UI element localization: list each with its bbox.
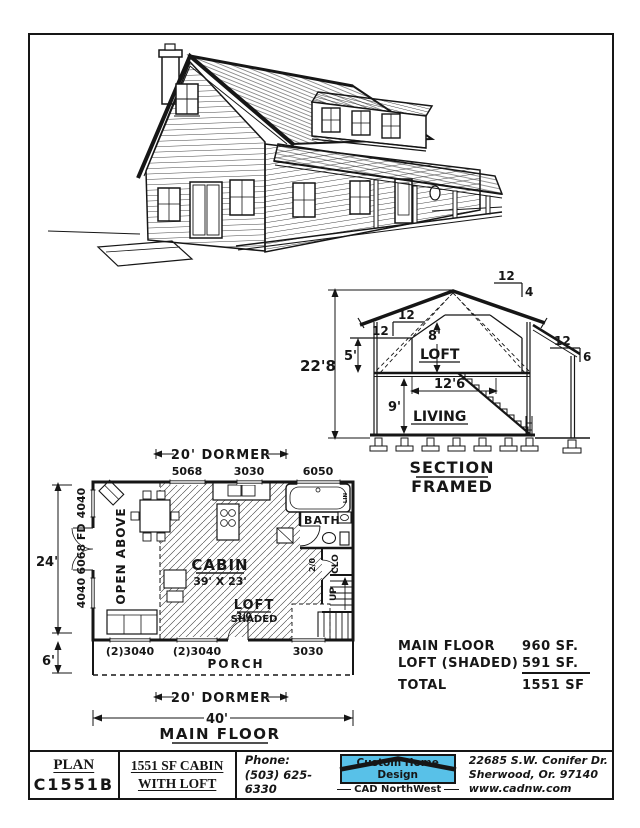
title-block-plan-cell: PLAN C1551B [30, 752, 118, 798]
door-front-label: 3/0 [236, 612, 252, 622]
pitch-12-12: 12 12 [372, 308, 425, 338]
dormer-window [322, 108, 340, 132]
dormer-window [382, 114, 400, 138]
corner-unit [99, 480, 124, 505]
area-row-total: TOTAL 1551 SF [398, 677, 590, 694]
open-above-label: OPEN ABOVE [114, 507, 128, 604]
plan-sheet: 22'8 8' LOFT 5' 12'6 9' LIVING 12 [0, 0, 640, 828]
dim-loft-width: 12'6 [434, 377, 465, 392]
area-value: 960 SF. [522, 638, 590, 655]
porch-depth-dim: 6' [42, 654, 55, 669]
area-label: MAIN FLOOR [398, 638, 495, 655]
svg-text:(2)3040: (2)3040 [106, 645, 155, 658]
address-line3: www.cadnw.com [469, 782, 608, 796]
svg-text:12: 12 [498, 269, 515, 283]
logo-roof-icon [336, 756, 460, 771]
cabin-size-label: 39' X 23' [193, 575, 247, 588]
svg-text:3030: 3030 [234, 465, 265, 478]
loft-label: LOFT [234, 598, 275, 613]
title-block: PLAN C1551B 1551 SF CABIN WITH LOFT Phon… [28, 750, 614, 800]
svg-text:6068 FD: 6068 FD [75, 523, 88, 574]
armchair [164, 570, 186, 602]
logo-subtitle: CAD NorthWest [337, 784, 459, 795]
cabin-perspective-drawing [40, 40, 510, 275]
dim-kneewall: 5' [344, 349, 357, 364]
clo-label: CLO [331, 554, 341, 574]
dim-overall-height: 22'8 [300, 357, 336, 375]
area-label: LOFT (SHADED) [398, 655, 518, 674]
up-label: UP [329, 587, 339, 601]
porch-label: PORCH [207, 657, 264, 671]
living-label: LIVING [413, 409, 466, 425]
company-logo: Custom Home Design CAD NorthWest [335, 756, 461, 795]
plan-label: PLAN [53, 757, 94, 774]
plan-title-line2: WITH LOFT [138, 775, 216, 793]
cabin-label: CABIN [191, 556, 248, 574]
entry-stoop [98, 241, 192, 266]
plan-number: C1551B [34, 775, 114, 794]
side-door [395, 179, 412, 223]
lin-label: LIN [343, 493, 349, 504]
section-structure [350, 291, 590, 453]
front-double-door [190, 182, 222, 238]
dormer-top-dim: 20' DORMER [171, 448, 271, 463]
floor-plan-drawing: OPEN ABOVE CABIN 39' X 23' LOFT SHADED B… [28, 438, 388, 748]
area-row: LOFT (SHADED) 591 SF. [398, 655, 590, 674]
door-bath-label: 2/0 [308, 558, 317, 572]
dim-living-height: 9' [388, 400, 401, 415]
svg-text:SECTION: SECTION [409, 458, 494, 477]
area-row: MAIN FLOOR 960 SF. [398, 638, 590, 655]
loft-label: LOFT [420, 347, 460, 363]
dim-loft-height: 8' [428, 329, 441, 344]
title-block-title-cell: 1551 SF CABIN WITH LOFT [118, 752, 237, 798]
dormer-window [352, 111, 370, 135]
svg-text:4040: 4040 [75, 487, 88, 518]
section-stairs [458, 373, 532, 436]
dormer-bottom-dim: 20' DORMER [171, 691, 271, 706]
svg-text:4: 4 [525, 285, 533, 299]
area-table: MAIN FLOOR 960 SF. LOFT (SHADED) 591 SF.… [398, 638, 590, 694]
area-label: TOTAL [398, 677, 447, 694]
svg-text:4040: 4040 [75, 577, 88, 608]
title-block-company-cell: Phone: (503) 625-6330 Custom Home Design… [237, 752, 612, 798]
address-line1: 22685 S.W. Conifer Dr. [469, 754, 608, 768]
sofa [107, 610, 157, 634]
toilet [323, 533, 336, 544]
plan-title: MAIN FLOOR [159, 725, 280, 743]
bath-label: BATH [304, 514, 341, 527]
plan-title-line1: 1551 SF CABIN [131, 757, 224, 775]
svg-text:12: 12 [372, 324, 389, 338]
address-block: 22685 S.W. Conifer Dr. Sherwood, Or. 971… [469, 754, 608, 795]
phone-number: (503) 625-6330 [245, 768, 327, 798]
svg-text:6: 6 [583, 350, 591, 364]
svg-text:12: 12 [554, 334, 571, 348]
svg-text:FRAMED: FRAMED [411, 477, 493, 496]
pitch-12-4: 12 4 [494, 269, 533, 299]
phone-block: Phone: (503) 625-6330 [245, 753, 327, 798]
foundation-piers [370, 438, 581, 453]
depth-dim: 24' [36, 555, 58, 570]
svg-text:3030: 3030 [293, 645, 324, 658]
area-value: 1551 SF [522, 677, 590, 694]
section-title: SECTION FRAMED [409, 458, 494, 496]
svg-text:5068: 5068 [172, 465, 203, 478]
address-line2: Sherwood, Or. 97140 [469, 768, 608, 782]
area-value: 591 SF. [522, 655, 590, 674]
svg-text:6050: 6050 [303, 465, 334, 478]
phone-label: Phone: [245, 753, 327, 768]
stairs-lower [318, 612, 353, 640]
svg-text:(2)3040: (2)3040 [173, 645, 222, 658]
svg-text:12: 12 [398, 308, 415, 322]
